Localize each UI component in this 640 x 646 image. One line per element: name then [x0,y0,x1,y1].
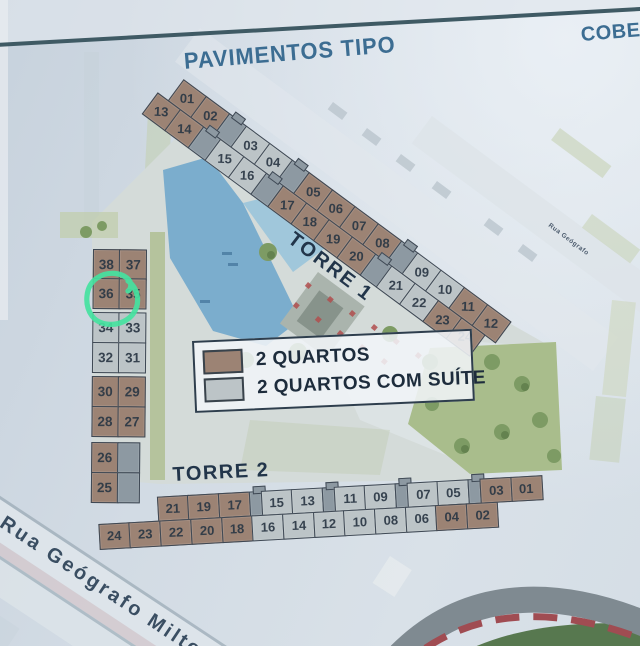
unit-04: 04 [435,503,468,531]
unit-number: 02 [203,108,218,124]
unit-28: 28 [91,406,119,437]
unit-number: 14 [291,518,306,533]
unit-number: 20 [199,523,214,538]
unit-number: 13 [154,104,169,120]
unit-number: 07 [352,218,367,234]
unit-number: 05 [305,184,320,200]
unit-pair-row: 2827 [92,406,146,437]
unit-22: 22 [159,519,192,547]
unit-24: 24 [98,522,131,550]
unit-number: 22 [169,525,184,540]
unit-number: 34 [98,320,113,335]
unit-number: 23 [435,312,450,328]
legend-swatch-2-quartos [202,349,243,375]
unit-number: 29 [125,384,140,399]
unit-15: 15 [260,489,293,516]
unit-number: 19 [326,231,341,247]
unit-number: 16 [240,167,255,183]
coberturas-partial-label: COBE [580,19,640,47]
unit-number: 18 [303,214,318,230]
unit-number: 05 [446,485,461,500]
unit-number: 30 [98,384,113,399]
unit-02: 02 [466,501,499,529]
unit-number: 17 [227,497,242,512]
unit-number: 03 [488,483,503,498]
unit-32: 32 [92,342,120,373]
unit-number: 07 [415,487,430,502]
unit-09: 09 [364,483,397,510]
unit-number: 15 [269,495,284,510]
torre-2-vertical-wing: 3837363534333231302928272625 [92,250,148,503]
unit-number: 36 [99,286,114,301]
unit-18: 18 [221,515,254,543]
unit-10: 10 [343,508,376,536]
unit-pair-row: 3635 [93,278,147,309]
unit-number: 09 [373,489,388,504]
unit-number: 09 [414,264,429,280]
unit-number: 16 [261,520,276,535]
unit-20: 20 [190,517,223,545]
unit-05: 05 [437,479,470,506]
unit-31: 31 [118,342,146,373]
unit-number: 02 [475,508,490,523]
floor-plan-photo: PAVIMENTOS TIPO COBE 0102030405060708091… [0,0,640,646]
unit-number: 08 [383,513,398,528]
unit-11: 11 [333,485,366,512]
unit-07: 07 [406,481,439,508]
unit-number: 08 [375,235,390,251]
unit-number: 12 [484,316,499,332]
unit-26: 26 [91,442,119,473]
unit-06: 06 [405,505,438,533]
unit-number: 04 [266,154,281,170]
legend-label-2-quartos: 2 QUARTOS [255,344,370,371]
unit-38: 38 [92,249,120,280]
unit-number: 06 [414,511,429,526]
unit-number: 20 [349,248,364,264]
unit-number: 38 [99,257,114,272]
unit-pair-row: 3029 [93,376,147,407]
unit-number: 27 [124,414,139,429]
unit-34: 34 [92,312,120,343]
unit-14: 14 [282,512,315,540]
unit-number: 06 [329,201,344,217]
unit-number: 35 [125,287,140,302]
unit-number: 10 [437,282,452,298]
legend-label-2-quartos-suite: 2 QUARTOS COM SUÍTE [257,367,487,399]
unit-number: 03 [243,137,258,153]
unit-17: 17 [218,492,251,519]
unit-number: 01 [519,481,534,496]
unit-number: 13 [300,493,315,508]
unit-number: 25 [97,480,112,495]
unit-13: 13 [291,487,324,514]
unit-number: 32 [98,350,113,365]
legend-swatch-2-quartos-suite [204,377,245,403]
unit-number: 17 [280,197,295,213]
unit-21: 21 [157,495,190,522]
unit-number: 31 [125,350,140,365]
legend: 2 QUARTOS 2 QUARTOS COM SUÍTE [192,329,475,413]
unit-number: 24 [107,528,122,543]
unit-number: 01 [180,91,195,107]
unit-number: 12 [322,516,337,531]
unit-29: 29 [118,376,146,407]
unit-01: 01 [510,475,543,502]
unit-number: 10 [353,514,368,529]
unit-number: 11 [343,491,357,506]
unit-number: 21 [166,501,181,516]
unit-16: 16 [251,513,284,541]
unit-number: 37 [126,257,141,272]
unit-number: 28 [98,414,113,429]
unit-number: 22 [412,294,427,310]
unit-pair-row: 3231 [93,342,147,373]
unit-number: 15 [217,150,232,166]
unit-27: 27 [118,406,146,437]
unit-19: 19 [187,493,220,520]
tower-core-block [117,442,140,473]
unit-03: 03 [479,477,512,504]
unit-37: 37 [119,249,147,280]
unit-number: 18 [230,521,245,536]
unit-number: 23 [138,526,153,541]
unit-12: 12 [313,510,346,538]
unit-number: 19 [196,499,211,514]
unit-number: 26 [97,450,112,465]
unit-number: 11 [461,299,475,315]
unit-35: 35 [119,279,147,310]
unit-number: 33 [125,321,140,336]
unit-33: 33 [119,313,147,344]
unit-pair-row: 26 [92,442,146,473]
unit-23: 23 [129,520,162,548]
unit-number: 04 [444,509,459,524]
unit-08: 08 [374,507,407,535]
unit-pair-row: 3433 [93,312,147,343]
unit-number: 21 [389,277,404,293]
unit-30: 30 [91,376,119,407]
unit-number: 14 [177,121,192,137]
unit-36: 36 [92,278,120,309]
unit-pair-row: 3837 [94,249,148,280]
